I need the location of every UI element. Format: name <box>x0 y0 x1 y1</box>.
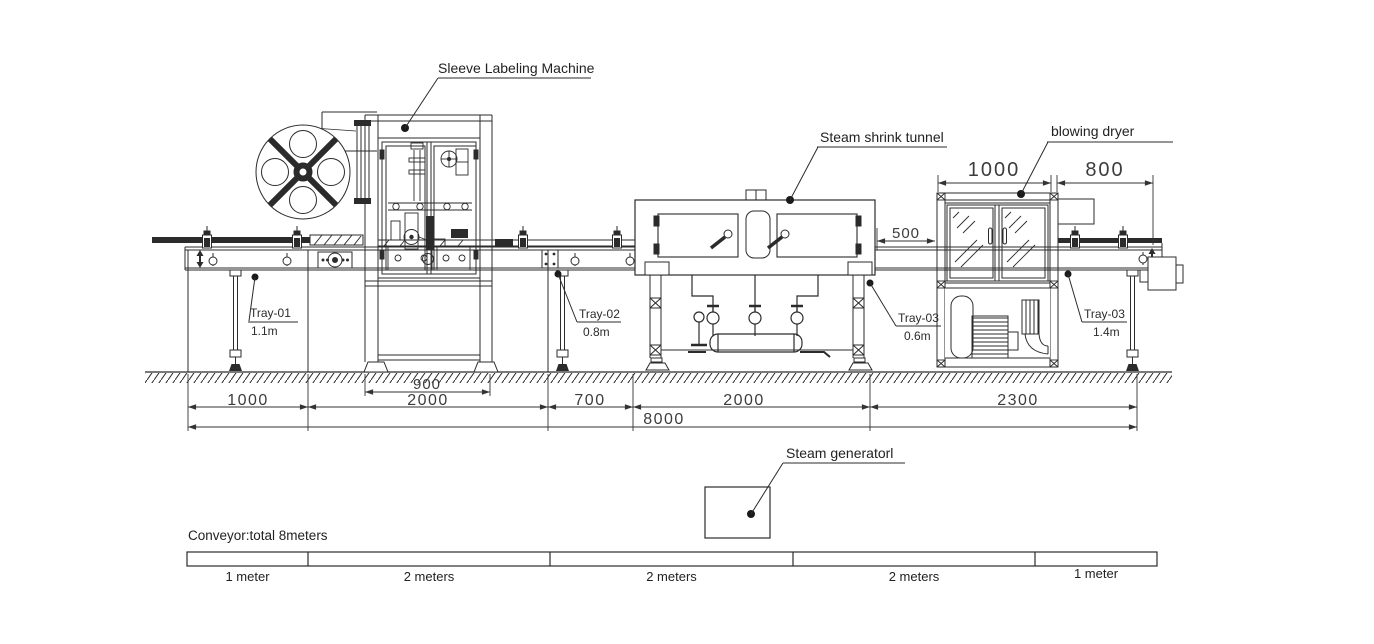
tray-03b-name: Tray-03 <box>1084 308 1125 320</box>
line-art <box>0 0 1374 644</box>
dim-dryer-width: 1000 <box>954 160 1034 180</box>
conveyor-drive <box>318 252 352 268</box>
dim-infeed: 1000 <box>208 393 288 409</box>
dim-outfeed-width: 800 <box>1065 160 1145 180</box>
dryer-glass-doors <box>945 203 1050 283</box>
conveyor-segment-label: 2 meters <box>550 570 793 583</box>
label-reel <box>256 125 350 219</box>
conveyor-segment-label: 1 meter <box>187 570 308 583</box>
label-steam-generator: Steam generatorl <box>786 446 893 460</box>
dim-tunnel-dryer-gap: 500 <box>876 226 936 241</box>
label-steam-shrink-tunnel: Steam shrink tunnel <box>820 130 944 144</box>
dim-tunnel: 2000 <box>704 393 784 409</box>
conveyor-leg <box>229 270 242 371</box>
mount-plate <box>542 250 558 268</box>
dim-total: 8000 <box>624 412 704 428</box>
production-line-drawing: Sleeve Labeling Machine Steam shrink tun… <box>0 0 1374 644</box>
steam-generator <box>705 463 905 538</box>
label-blowing-dryer: blowing dryer <box>1051 124 1134 138</box>
conveyor-end-box <box>1140 257 1183 290</box>
tray-03-name: Tray-03 <box>898 312 939 324</box>
dim-labeler-feet: 900 <box>392 377 462 392</box>
steam-shrink-tunnel <box>635 190 875 370</box>
dim-labeler: 2000 <box>388 393 468 409</box>
timing-screw <box>310 235 363 245</box>
dim-labeler-tunnel-gap: 700 <box>555 393 625 409</box>
valve <box>749 306 761 336</box>
valve <box>791 306 803 336</box>
valve <box>707 306 719 336</box>
ground <box>145 372 1172 383</box>
tray-03b-height: 1.4m <box>1093 326 1120 338</box>
tray-02-height: 0.8m <box>583 326 610 338</box>
pressure-gauge <box>691 312 707 345</box>
blower-unit <box>945 289 1050 359</box>
conveyor-schematic <box>187 552 1157 566</box>
label-sleeve-labeling-machine: Sleeve Labeling Machine <box>438 61 594 75</box>
tray-01-height: 1.1m <box>251 325 278 337</box>
conveyor-title: Conveyor:total 8meters <box>188 529 328 543</box>
conveyor-segment-label: 2 meters <box>308 570 550 583</box>
blowing-dryer <box>937 193 1094 367</box>
conveyor-leg <box>1126 270 1139 371</box>
conveyor-segment-label: 2 meters <box>793 570 1035 583</box>
tray-01-name: Tray-01 <box>250 307 291 319</box>
tray-03-height: 0.6m <box>904 330 931 342</box>
tray-02-name: Tray-02 <box>579 308 620 320</box>
steam-piping <box>688 275 830 357</box>
conveyor-segment-label: 1 meter <box>1035 567 1157 580</box>
glass-marks <box>953 212 1035 267</box>
dim-outfeed: 2300 <box>978 393 1058 409</box>
